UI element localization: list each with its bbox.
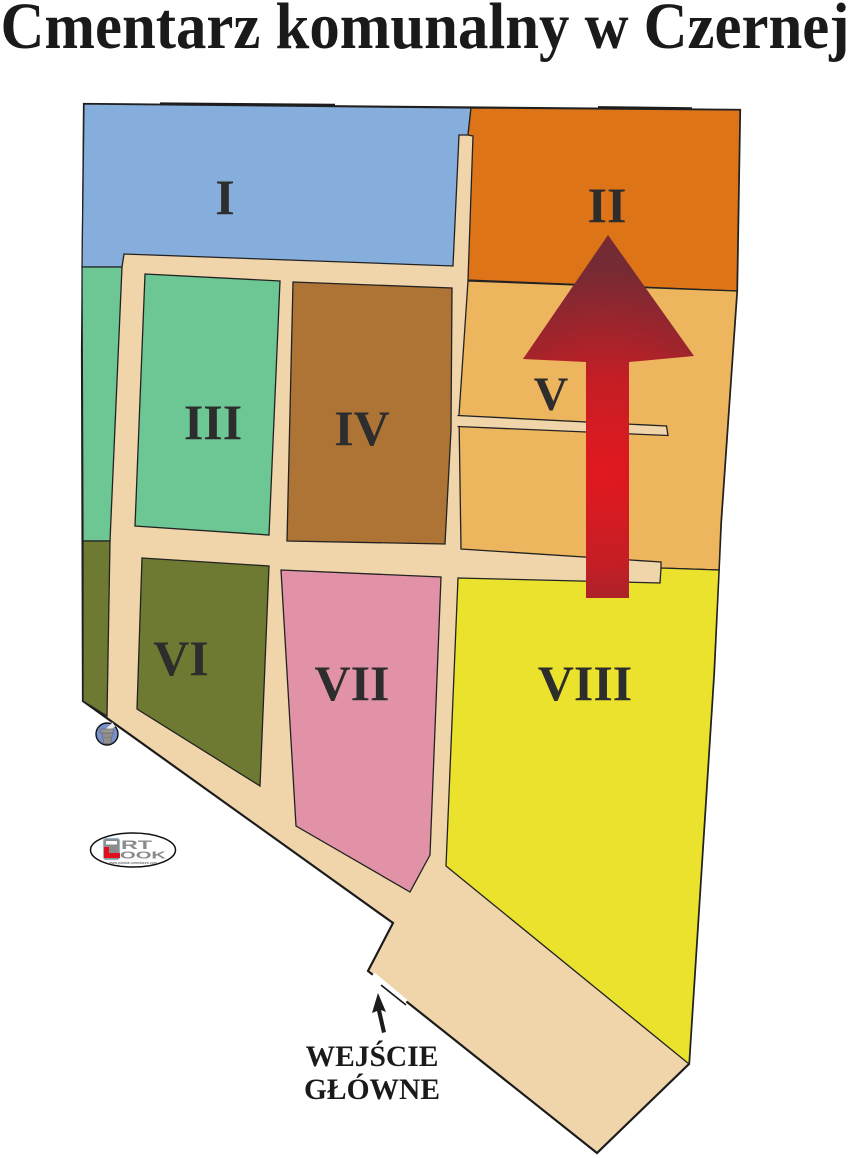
svg-text:I: I <box>215 169 234 225</box>
svg-text:VI: VI <box>153 630 209 686</box>
svg-text:IV: IV <box>334 400 390 456</box>
svg-text:Cmentarz komunalny w Czernej: Cmentarz komunalny w Czernej <box>1 0 850 63</box>
svg-text:II: II <box>588 177 627 233</box>
svg-text:III: III <box>184 394 242 450</box>
svg-text:www.polskie-cmentarze.com: www.polskie-cmentarze.com <box>109 861 157 865</box>
svg-text:WEJŚCIE: WEJŚCIE <box>306 1040 439 1073</box>
svg-text:V: V <box>534 368 569 421</box>
svg-text:VII: VII <box>314 655 389 711</box>
svg-text:VIII: VIII <box>538 655 632 711</box>
svg-text:GŁÓWNE: GŁÓWNE <box>304 1073 440 1106</box>
svg-text:OOK: OOK <box>120 850 167 862</box>
